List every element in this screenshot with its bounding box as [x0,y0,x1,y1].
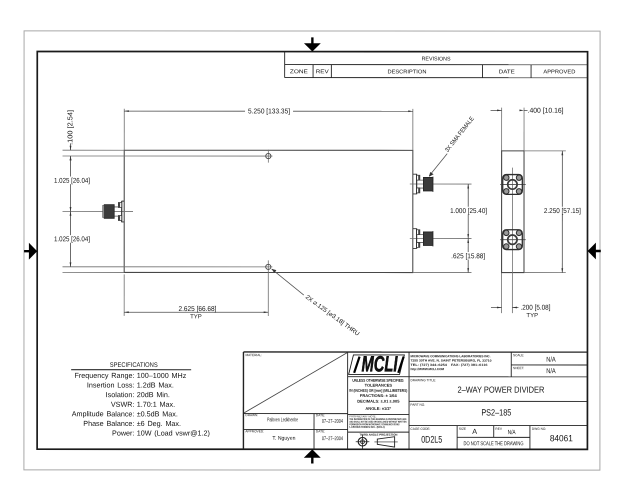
svg-text:Insertion Loss:: Insertion Loss: [87,381,135,390]
svg-text:.100 [2.54]: .100 [2.54] [66,110,74,145]
svg-text:ZONE: ZONE [290,69,308,75]
svg-text:DATE: DATE [499,69,515,75]
svg-text:Frequency Range:: Frequency Range: [75,371,135,380]
svg-text:SCALE:: SCALE: [513,353,524,357]
svg-text:T. Nguyen: T. Nguyen [272,436,295,442]
svg-text:N/A: N/A [546,356,556,364]
svg-text:.400 [10.16]: .400 [10.16] [528,107,564,115]
svg-text:MCLI: MCLI [361,351,398,376]
svg-text:.625 [15.88]: .625 [15.88] [451,252,485,260]
svg-text:DATE:: DATE: [316,413,325,417]
svg-text:REVISIONS: REVISIONS [422,56,451,62]
svg-text:REV: REV [495,427,502,431]
svg-text:Palbven Ledkhenbe: Palbven Ledkhenbe [267,417,298,423]
svg-text:VSWR:: VSWR: [111,400,135,409]
svg-text:1.025 [26.04]: 1.025 [26.04] [54,177,90,185]
svg-text:10W (Load vswr@1.2): 10W (Load vswr@1.2) [137,429,210,438]
svg-text:PS2–185: PS2–185 [481,407,511,417]
svg-text:DATE:: DATE: [316,429,325,433]
svg-text:REV: REV [316,69,329,75]
svg-text:SHEET:: SHEET: [513,366,524,370]
svg-text:1.70:1 Max.: 1.70:1 Max. [137,400,175,409]
svg-text:A: A [472,427,477,436]
svg-text:Power:: Power: [112,429,134,438]
svg-text:SIZE: SIZE [459,427,466,431]
svg-text:2.625 [66.68]: 2.625 [66.68] [178,305,216,313]
svg-text:±0.5dB Max.: ±0.5dB Max. [137,409,178,418]
svg-text:APPROVED:: APPROVED: [245,429,264,433]
svg-text:ANGLE: ±1/2°: ANGLE: ±1/2° [365,406,391,411]
svg-text:APPROVED: APPROVED [543,69,575,75]
svg-text:2.250 [57.15]: 2.250 [57.15] [544,207,581,215]
svg-text:THIRD ANGLE PROJECTION: THIRD ANGLE PROJECTION [359,433,397,437]
svg-text:DO NOT SCALE THE DRAWING: DO NOT SCALE THE DRAWING [464,441,524,447]
svg-text:2–WAY POWER DIVIDER: 2–WAY POWER DIVIDER [457,385,544,395]
svg-text:MATERIAL:: MATERIAL: [245,353,262,357]
svg-text:20dB Min.: 20dB Min. [137,390,170,399]
svg-text:Isolation:: Isolation: [106,390,135,399]
svg-text:Amplitude Balance:: Amplitude Balance: [72,409,135,418]
svg-text:DWG NO.: DWG NO. [532,427,546,431]
svg-text:1.2dB Max.: 1.2dB Max. [137,381,174,390]
svg-text:.200 [5.08]: .200 [5.08] [520,304,550,312]
svg-text:http://WWW.MCLI.COM: http://WWW.MCLI.COM [410,367,444,371]
svg-text:DECIMALS: ±.01 ±.005: DECIMALS: ±.01 ±.005 [357,399,400,404]
svg-text:FRACTIONS: ± 1/64: FRACTIONS: ± 1/64 [360,393,398,398]
svg-text:DESCRIPTION: DESCRIPTION [387,69,426,75]
svg-text:84061: 84061 [550,433,573,443]
svg-text:5.250 [133.35]: 5.250 [133.35] [248,107,290,115]
svg-text:LABORATORIES INC. (MCLI): LABORATORIES INC. (MCLI) [349,426,384,429]
svg-text:DRAWING TITLE:: DRAWING TITLE: [410,378,436,382]
svg-text:DRAWN:: DRAWN: [245,413,258,417]
svg-text:TYP: TYP [526,312,538,319]
svg-text:PART NO.: PART NO. [410,403,425,407]
svg-text:CAGE CODE:: CAGE CODE: [410,427,430,431]
svg-text:TYP: TYP [190,313,202,320]
svg-text:07–27–2004: 07–27–2004 [322,419,343,425]
svg-text:Phase Balance:: Phase Balance: [83,419,134,428]
svg-text:N/A: N/A [508,429,517,436]
svg-text:±6 Deg. Max.: ±6 Deg. Max. [137,419,181,428]
svg-text:0D2L5: 0D2L5 [421,435,442,446]
svg-text:SPECIFICATIONS: SPECIFICATIONS [110,362,159,369]
svg-text:07–27–2004: 07–27–2004 [322,436,343,442]
svg-text:N/A: N/A [546,367,556,375]
svg-text:100–1000 MHz: 100–1000 MHz [137,371,187,380]
svg-text:1.025 [26.04]: 1.025 [26.04] [54,235,90,243]
svg-text:1.000 [25.40]: 1.000 [25.40] [450,207,487,215]
